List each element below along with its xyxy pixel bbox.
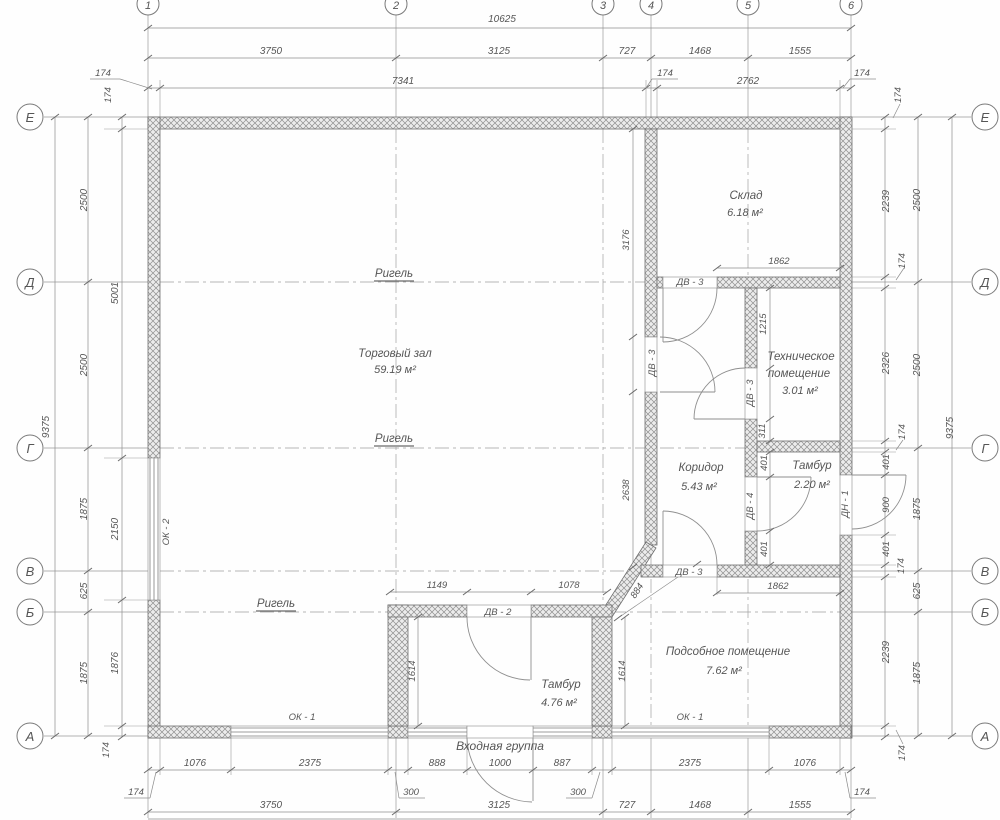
- opening-entrance-door: [467, 726, 533, 738]
- room-vestibule-small-area: 2.20 м²: [793, 479, 830, 491]
- dim-1149: 1149: [427, 580, 448, 591]
- dim-401a: 401: [759, 455, 770, 471]
- room-vestibule-small-name: Тамбур: [792, 460, 832, 472]
- axis-label-2: 2: [392, 0, 399, 12]
- entrance-group-label: Входная группа: [456, 739, 544, 753]
- dim-bot-1076b: 1076: [794, 758, 817, 769]
- door-arc-hall: [660, 337, 715, 392]
- witness-lines: [104, 80, 896, 775]
- dim-left-2500a: 2500: [79, 188, 90, 212]
- dim-right-2500a: 2500: [912, 188, 923, 212]
- wall-vestibule-left: [388, 605, 408, 726]
- beam-label-1: Ригель: [375, 268, 413, 280]
- dimension-lines: [55, 28, 952, 819]
- dim-bot-1468: 1468: [689, 800, 712, 811]
- door-arc-utility: [663, 511, 717, 565]
- axis-label-B-left: Б: [26, 605, 35, 620]
- dim-utility-1862: 1862: [767, 581, 789, 592]
- dim-left-1875b: 1875: [79, 661, 90, 684]
- window-ok1-right-label: ОК - 1: [677, 712, 704, 723]
- dim-right-174d: 174: [896, 558, 907, 574]
- dim-right-174b: 174: [897, 253, 908, 269]
- dim-2638: 2638: [621, 479, 632, 502]
- dim-right-1875b: 1875: [912, 661, 923, 684]
- dim-bot-3750: 3750: [260, 800, 283, 811]
- dim-bot-300b: 300: [570, 787, 587, 798]
- dim-top-174-mid: 174: [657, 68, 673, 79]
- wall-exterior-right-upper: [840, 117, 852, 475]
- dim-bot-174-left: 174: [128, 787, 144, 798]
- room-utility-name: Подсобное помещение: [666, 646, 790, 658]
- door-arc-warehouse: [663, 288, 717, 342]
- door-arc-dv2: [467, 617, 530, 680]
- window-ok1-right: [612, 726, 769, 738]
- wall-exterior-left-lower: [148, 600, 160, 738]
- axis-label-D-right: Д: [978, 275, 989, 290]
- axis-label-G-right: Г: [981, 441, 989, 456]
- dim-3176: 3176: [621, 229, 632, 251]
- wall-exterior-bottom-1: [148, 726, 231, 738]
- door-dv3-technical-label: ДВ - 3: [745, 379, 756, 407]
- axis-label-4: 4: [648, 0, 654, 12]
- dim-top-174-left: 174: [95, 68, 111, 79]
- dim-right-2326: 2326: [881, 351, 892, 375]
- wall-exterior-right-lower: [840, 535, 852, 738]
- floor-plan-drawing: 1 2 3 4 5 6 Е Д Г В Б А Е Д Г В Б А 1062…: [0, 0, 1000, 820]
- room-utility-area: 7.62 м²: [706, 665, 742, 677]
- dim-top-3750: 3750: [260, 46, 283, 57]
- dim-right-9375: 9375: [945, 416, 956, 439]
- axis-label-5: 5: [745, 0, 752, 12]
- dim-right-2239a: 2239: [881, 189, 892, 213]
- window-ok1-left: [231, 726, 388, 738]
- door-dn1-label: ДН - 1: [840, 490, 851, 518]
- wall-warehouse-stub: [657, 277, 663, 288]
- dim-right-174e: 174: [897, 745, 908, 761]
- wall-utility-top: [717, 565, 840, 577]
- wall-exterior-bottom-2: [388, 726, 408, 738]
- windows: [148, 458, 769, 738]
- dim-left-2500b: 2500: [79, 353, 90, 377]
- dim-top-7341: 7341: [392, 76, 414, 87]
- dim-left-174-top: 174: [103, 87, 114, 103]
- dim-left-5001: 5001: [110, 282, 121, 304]
- room-vestibule-entry-area: 4.76 м²: [541, 697, 577, 709]
- dim-right-2239b: 2239: [881, 640, 892, 664]
- wall-divider-1: [745, 288, 757, 368]
- room-warehouse-name: Склад: [730, 190, 763, 202]
- dim-left-625: 625: [79, 582, 90, 599]
- room-technical-name1: Техническое: [767, 351, 834, 363]
- wall-exterior-bottom-3: [592, 726, 612, 738]
- dim-1614-left: 1614: [407, 660, 418, 681]
- dim-overall-top: 10625: [488, 14, 516, 25]
- axis-label-B-right: Б: [981, 605, 990, 620]
- dim-top-174-right: 174: [854, 68, 870, 79]
- window-ok2-label: ОК - 2: [161, 518, 172, 545]
- beam-label-2: Ригель: [375, 433, 413, 445]
- door-dv3-warehouse-label: ДВ - 3: [676, 277, 704, 288]
- axis-label-A-left: А: [25, 729, 35, 744]
- wall-vestibule-top-1: [388, 605, 467, 617]
- room-corridor-area: 5.43 м²: [681, 481, 717, 493]
- axis-label-E-left: Е: [26, 110, 35, 125]
- axis-label-6: 6: [848, 0, 855, 12]
- dim-warehouse-1862: 1862: [768, 256, 790, 267]
- axis-label-V-right: В: [981, 564, 990, 579]
- dim-left-174-bottom: 174: [101, 742, 112, 758]
- dim-bot-888: 888: [429, 758, 446, 769]
- door-openings: [467, 277, 852, 738]
- wall-vestibule-top-2: [531, 605, 612, 617]
- dim-bot-1000: 1000: [489, 758, 512, 769]
- leader-lines: [90, 79, 904, 798]
- dim-top-727: 727: [619, 46, 636, 57]
- axis-label-1: 1: [145, 0, 151, 12]
- wall-warehouse-bottom: [717, 277, 840, 288]
- beam-label-3: Ригель: [257, 598, 295, 610]
- dim-right-401a: 401: [881, 454, 892, 470]
- dim-left-2150: 2150: [110, 517, 121, 541]
- dim-bot-174-right: 174: [854, 787, 870, 798]
- door-dv3-hall-label: ДВ - 3: [647, 349, 658, 377]
- wall-exterior-top: [148, 117, 851, 129]
- wall-central-upper: [645, 129, 657, 337]
- room-trade-hall-area: 59.19 м²: [374, 364, 416, 376]
- room-technical-name2: помещение: [768, 368, 830, 380]
- window-ok1-left-label: ОК - 1: [289, 712, 316, 723]
- dim-top-2762: 2762: [736, 76, 760, 87]
- window-ok2: [148, 458, 160, 600]
- door-dv4-label: ДВ - 4: [745, 493, 756, 521]
- room-trade-hall-name: Торговый зал: [358, 348, 432, 360]
- wall-exterior-left-upper: [148, 117, 160, 458]
- dim-bot-2375a: 2375: [298, 758, 322, 769]
- wall-divider-2: [745, 419, 757, 477]
- dim-bot-1076a: 1076: [184, 758, 207, 769]
- dim-1614-right: 1614: [617, 660, 628, 681]
- dim-right-625: 625: [912, 582, 923, 599]
- dim-1078: 1078: [558, 580, 580, 591]
- dim-311: 311: [757, 423, 768, 438]
- dim-401b: 401: [759, 541, 770, 557]
- wall-technical-bottom: [757, 441, 840, 452]
- dim-right-2500b: 2500: [912, 353, 923, 377]
- axis-label-G-left: Г: [26, 441, 34, 456]
- dim-bot-3125: 3125: [488, 800, 511, 811]
- wall-central-lower: [645, 392, 657, 545]
- dimension-ticks: [51, 25, 956, 815]
- dim-bot-887: 887: [554, 758, 571, 769]
- axis-label-V-left: В: [26, 564, 35, 579]
- dim-right-900: 900: [881, 496, 892, 513]
- axis-label-A-right: А: [980, 729, 990, 744]
- door-arc-dn1: [852, 475, 906, 529]
- dim-top-1555: 1555: [789, 46, 812, 57]
- dim-top-3125: 3125: [488, 46, 511, 57]
- wall-vestibule-right: [592, 617, 612, 726]
- dim-right-174a: 174: [893, 87, 904, 103]
- wall-exterior-bottom-4: [769, 726, 851, 738]
- floor-plan-svg: 1 2 3 4 5 6 Е Д Г В Б А Е Д Г В Б А 1062…: [0, 0, 1000, 820]
- dim-left-1876: 1876: [110, 651, 121, 674]
- axis-lines: [44, 15, 971, 818]
- dim-right-401b: 401: [881, 541, 892, 557]
- dim-right-174c: 174: [897, 424, 908, 440]
- dim-left-1875a: 1875: [79, 497, 90, 520]
- room-technical-area: 3.01 м²: [782, 385, 818, 397]
- dim-left-9375: 9375: [41, 415, 52, 438]
- room-vestibule-entry-name: Тамбур: [541, 679, 581, 691]
- dim-bot-300a: 300: [403, 787, 420, 798]
- axis-label-E-right: Е: [981, 110, 990, 125]
- dim-1215: 1215: [758, 313, 769, 335]
- dim-right-1875a: 1875: [912, 497, 923, 520]
- dim-bot-2375b: 2375: [678, 758, 702, 769]
- axis-label-3: 3: [600, 0, 607, 12]
- dim-top-1468: 1468: [689, 46, 712, 57]
- door-arc-technical: [694, 368, 745, 419]
- room-warehouse-area: 6.18 м²: [727, 207, 763, 219]
- door-dv3-utility-label: ДВ - 3: [675, 567, 703, 578]
- door-dv2-label: ДВ - 2: [484, 607, 512, 618]
- wall-corridor-bottom-stub: [641, 565, 663, 577]
- dimension-labels: 10625 3750 3125 727 1468 1555 174 7341 1…: [41, 14, 956, 811]
- room-corridor-name: Коридор: [678, 462, 724, 474]
- axis-label-D-left: Д: [23, 275, 34, 290]
- dim-bot-1555: 1555: [789, 800, 812, 811]
- dim-bot-727: 727: [619, 800, 636, 811]
